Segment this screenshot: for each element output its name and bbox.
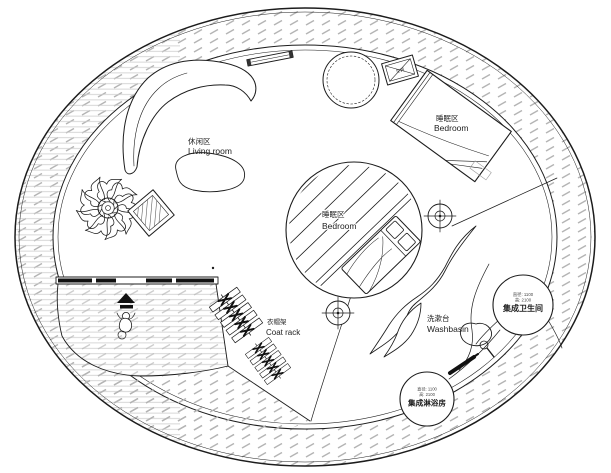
coat-rack-2 (244, 335, 292, 386)
floor-plan-svg: 空调 (0, 0, 611, 473)
round-table (323, 52, 379, 108)
bathroom-dim-1: 直径: 1100 (513, 291, 534, 297)
bedroom-center-label-en: Bedroom (322, 221, 357, 231)
bedroom-upper-label-zh: 睡眠区 (436, 114, 459, 123)
towel-stroke-icon (450, 354, 478, 373)
bedroom-center-label-zh: 睡眠区 (322, 210, 345, 219)
wall-bench (247, 51, 293, 66)
bathroom-pod: 直径: 1100 高: 2100 集成卫生间 (493, 275, 553, 335)
floor-plan: 空调 (0, 0, 611, 473)
shower-dim-2: 高: 2100 (419, 391, 436, 398)
shower-pod: 直径: 1100 高: 2100 集成淋浴房 (400, 372, 454, 426)
reference-dot (212, 267, 214, 269)
coat-rack-label-en: Coat rack (266, 328, 301, 337)
stool (128, 190, 174, 236)
washbasin-label-zh: 洗漱台 (427, 313, 450, 323)
column-marker-icon (424, 200, 456, 232)
coffee-table (176, 153, 245, 192)
ac-unit-icon: 空调 (382, 55, 419, 85)
plant-icon (76, 177, 138, 240)
living-room-label-en: Living room (188, 146, 232, 156)
bathroom-pod-name: 集成卫生间 (502, 303, 543, 313)
bathroom-dim-2: 高: 2100 (515, 297, 532, 304)
shower-dim-1: 直径: 1100 (417, 386, 437, 392)
washbasin-label-en: Washbasin (427, 324, 469, 334)
bedroom-upper-label-en: Bedroom (434, 123, 469, 133)
coat-rack-label-zh: 衣帽架 (267, 317, 287, 326)
living-room-label-zh: 休闲区 (188, 136, 211, 146)
entrance-door (56, 277, 218, 284)
shower-pod-name: 集成淋浴房 (407, 398, 446, 408)
